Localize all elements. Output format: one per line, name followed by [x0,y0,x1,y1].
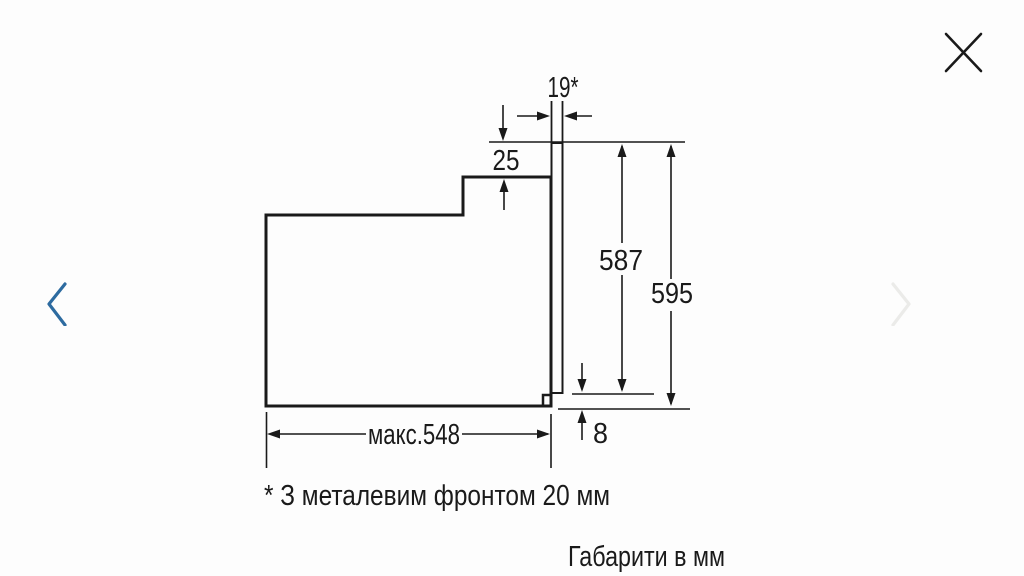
arrowhead [578,379,587,392]
dim-label-niche-height: 587 [599,245,643,277]
diagram-footnote: * З металевим фронтом 20 мм [264,480,610,512]
arrowhead [267,430,280,439]
chevron-right-icon [879,282,923,326]
arrowhead [667,144,676,157]
next-image-button[interactable] [879,282,923,326]
dim-label-front-thickness: 19* [548,72,579,104]
oven-body-outline [266,177,551,406]
image-viewer: 19* 25 587 595 8 макс.548 * З металевим [0,0,1024,576]
arrowhead [618,379,627,392]
arrowhead [667,393,676,406]
arrowhead [618,144,627,157]
arrowhead [537,112,550,121]
dim-label-bottom-gap: 8 [593,418,608,450]
dim-label-top-recess: 25 [493,145,520,177]
prev-image-button[interactable] [36,282,80,326]
oven-front-panel [552,143,563,393]
arrowhead [537,430,550,439]
arrowhead [578,410,587,423]
arrowhead [500,179,509,192]
chevron-left-icon [36,282,80,326]
close-button[interactable] [941,29,985,73]
arrowhead [564,112,577,121]
dimension-diagram: 19* 25 587 595 8 макс.548 * З металевим [0,0,1024,576]
dim-label-max-depth: макс.548 [368,419,460,451]
dim-label-total-height: 595 [651,278,693,310]
diagram-units-note: Габарити в мм [568,541,725,573]
arrowhead [499,128,508,141]
close-icon [941,29,985,73]
